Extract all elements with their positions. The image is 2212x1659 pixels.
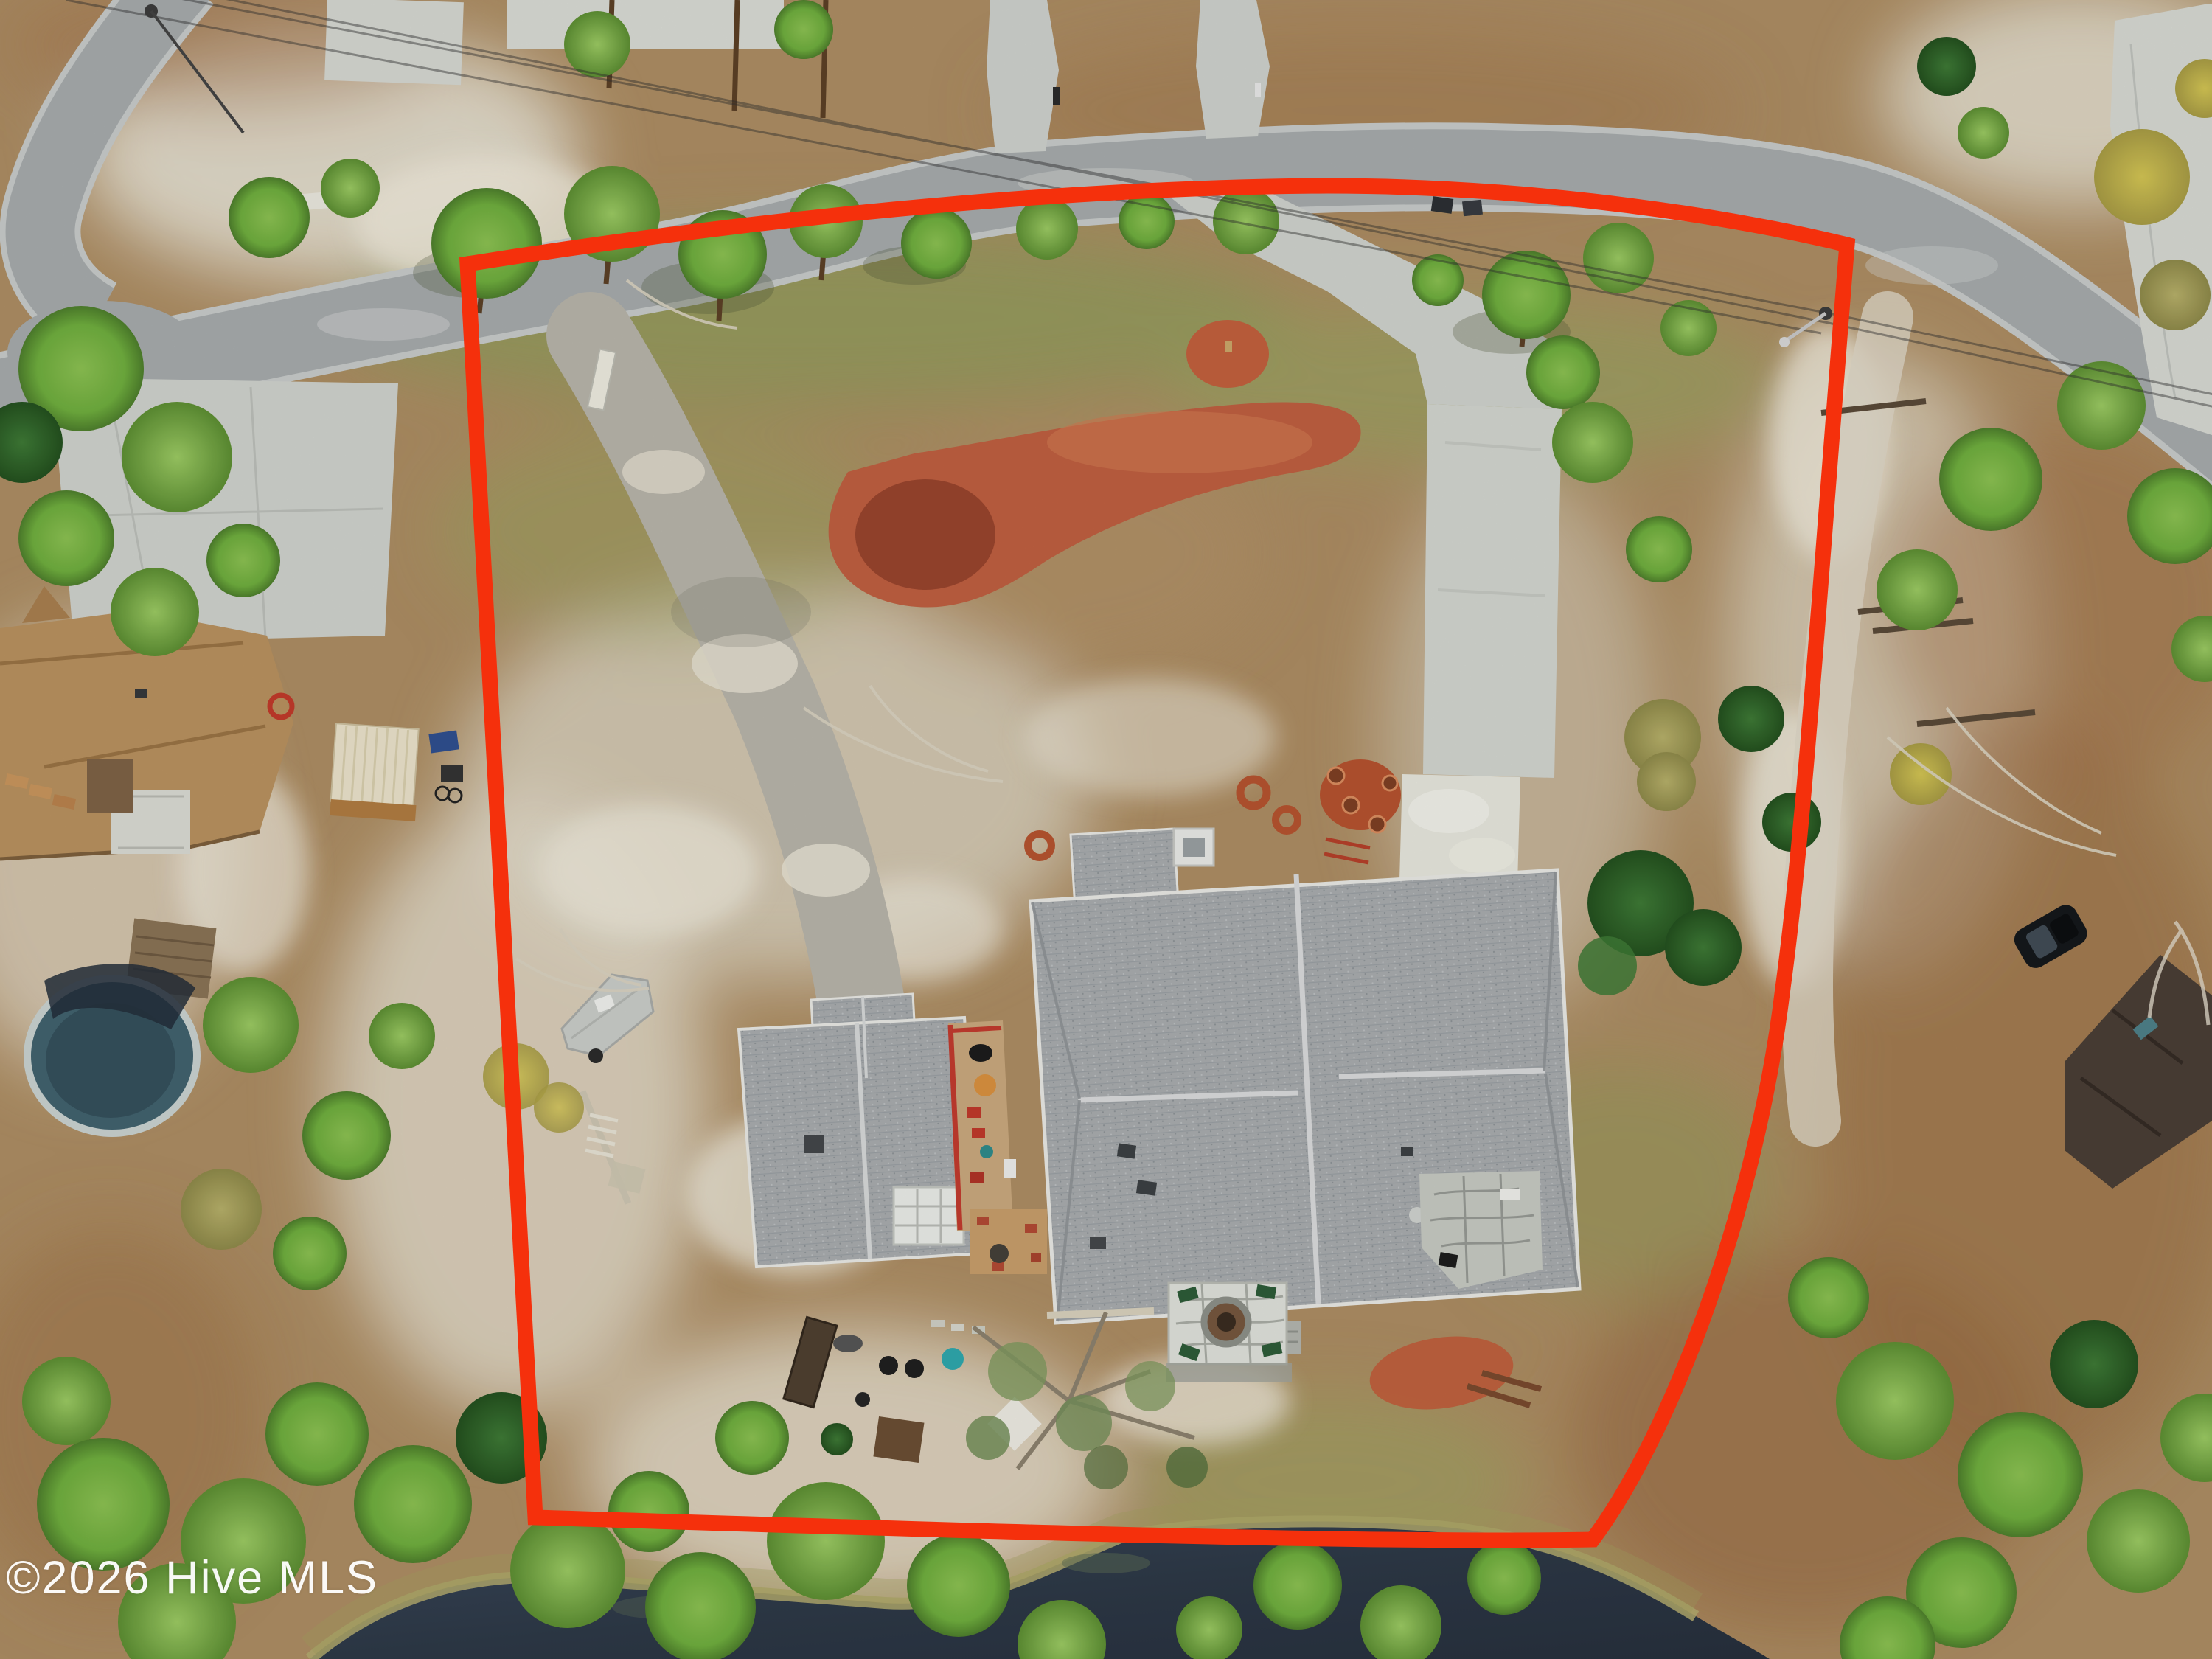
aerial-photo-canvas	[0, 0, 2212, 1659]
photo-grain	[0, 0, 2212, 1659]
aerial-photograph: ©2026 Hive MLS	[0, 0, 2212, 1659]
mls-watermark: ©2026 Hive MLS	[6, 1551, 378, 1604]
